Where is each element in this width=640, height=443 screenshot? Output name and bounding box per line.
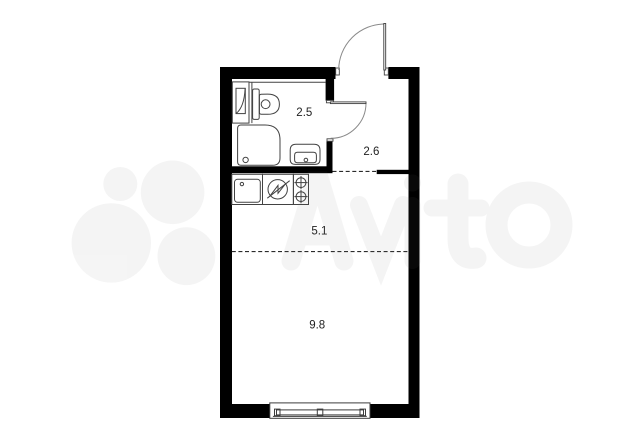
svg-text:9.8: 9.8 — [309, 319, 325, 331]
svg-text:2.6: 2.6 — [363, 146, 379, 158]
svg-text:2.5: 2.5 — [296, 107, 312, 119]
